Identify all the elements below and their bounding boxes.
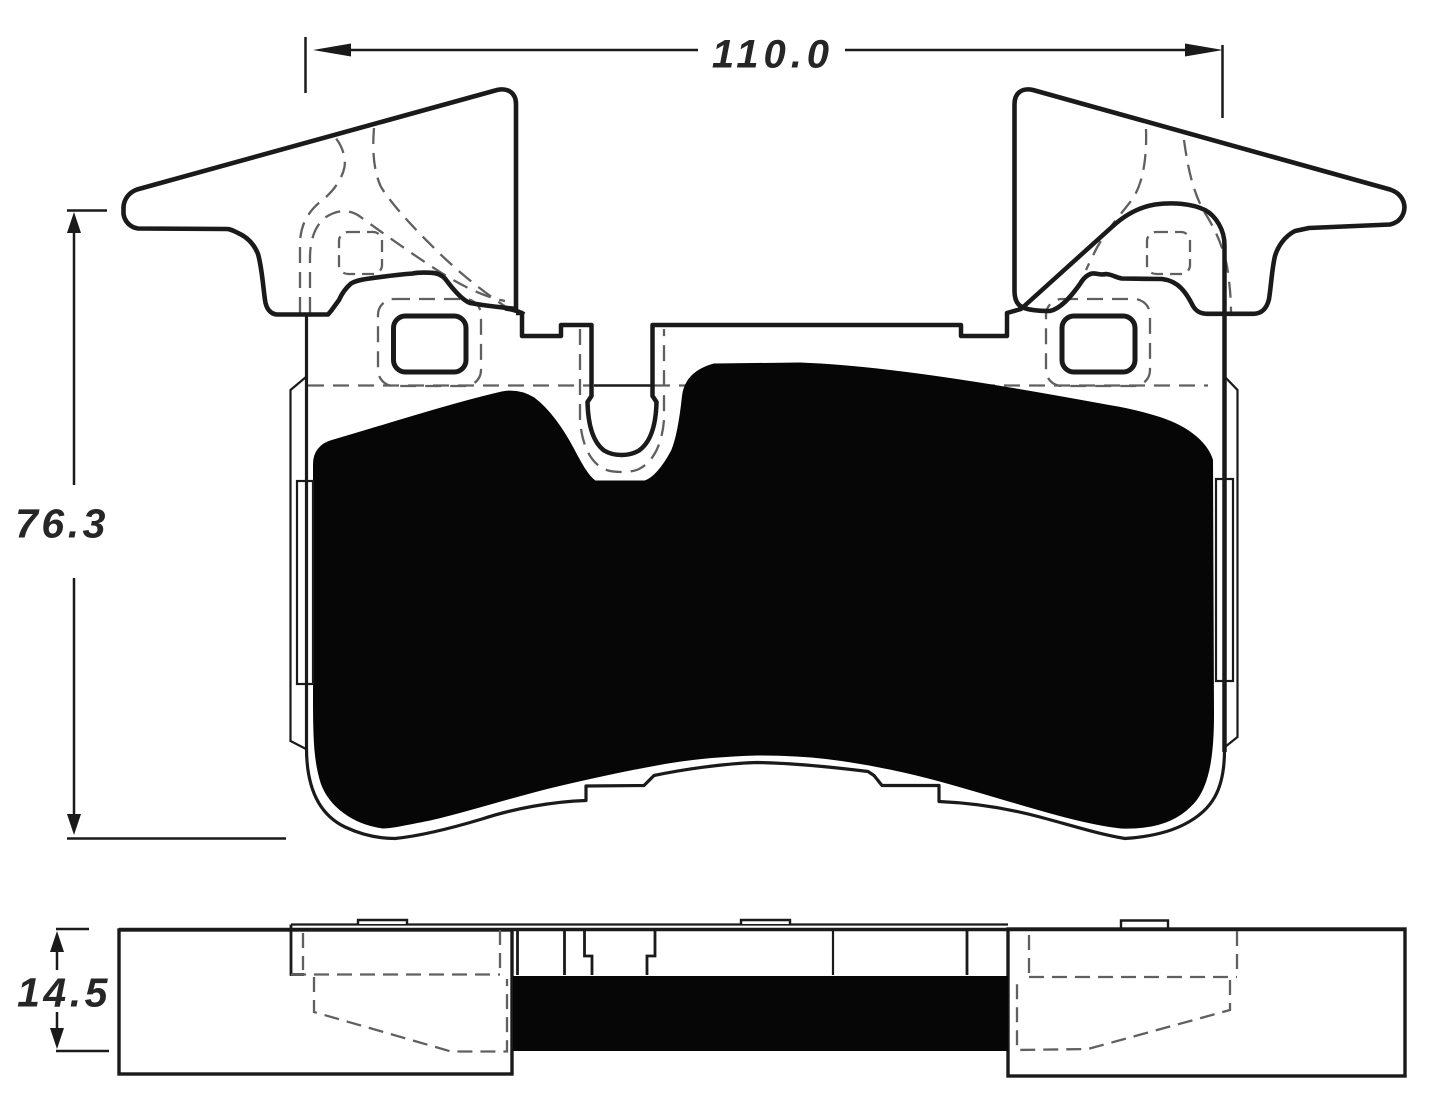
svg-text:76.3: 76.3	[15, 501, 109, 547]
svg-text:110.0: 110.0	[712, 33, 834, 77]
svg-text:14.5: 14.5	[17, 970, 111, 1016]
